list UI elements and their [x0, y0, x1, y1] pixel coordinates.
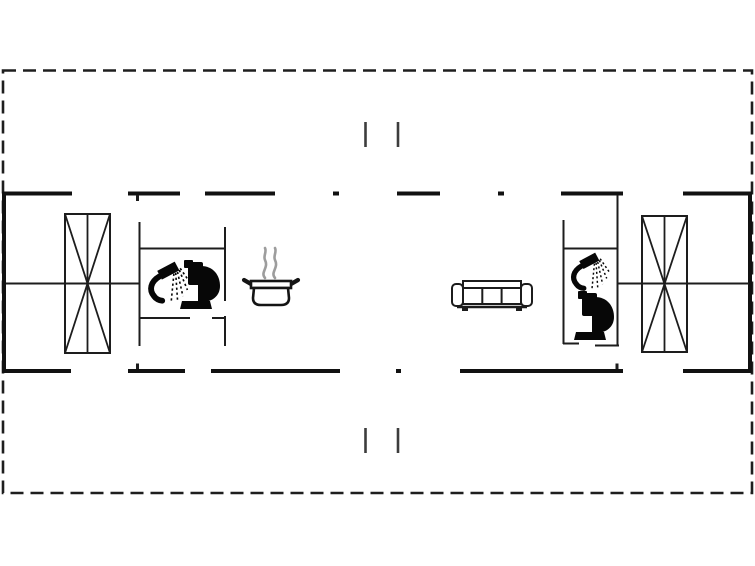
pot-body	[244, 280, 298, 305]
wardrobe-diagonal	[88, 284, 111, 354]
wardrobe-diagonal	[642, 216, 665, 284]
floor-plan-canvas	[0, 0, 755, 566]
sofa-icon	[452, 281, 532, 311]
steam-lines	[263, 248, 276, 278]
shower-icon	[574, 253, 610, 289]
interior-walls	[6, 195, 749, 369]
wardrobe-diagonal	[665, 284, 688, 352]
floor-plan-image	[0, 0, 755, 566]
wardrobe-diagonal	[65, 214, 88, 284]
exterior-walls	[2, 192, 752, 374]
section-marks	[366, 122, 399, 453]
wardrobe-diagonal	[642, 284, 665, 352]
wardrobe-diagonal	[88, 214, 111, 284]
wardrobe-diagonal	[65, 284, 88, 354]
wardrobe-diagonal	[665, 216, 688, 284]
toilet-icon	[574, 291, 614, 340]
cooking-pot-icon	[244, 248, 298, 305]
boundary-rect	[3, 71, 752, 494]
plot-boundary-dashed	[3, 71, 752, 494]
